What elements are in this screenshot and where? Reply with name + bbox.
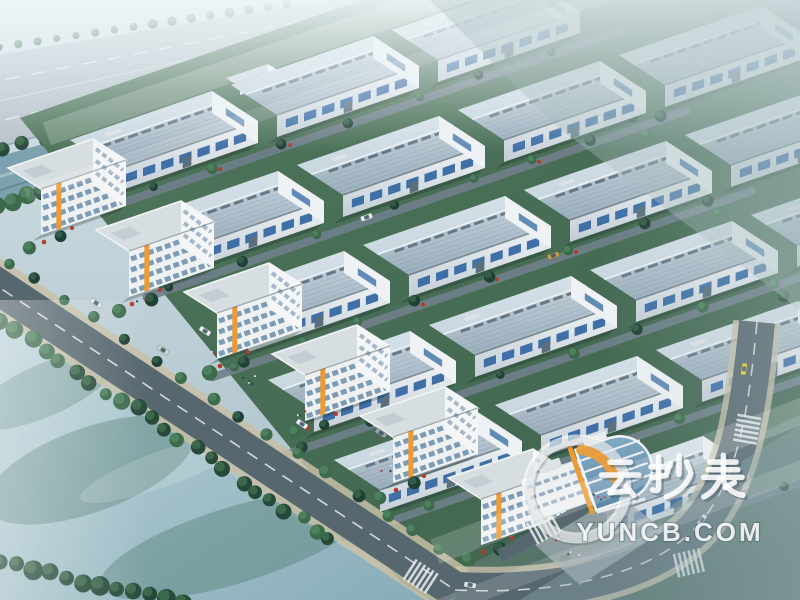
tree xyxy=(157,423,171,437)
office-accent-strip xyxy=(144,244,149,292)
tree xyxy=(230,363,239,372)
tree xyxy=(470,174,479,183)
person-dot xyxy=(297,414,299,416)
scene-svg: YUNCB.COM xyxy=(0,0,800,600)
tree xyxy=(312,230,321,239)
tree xyxy=(207,163,218,174)
tree xyxy=(374,492,387,505)
tree xyxy=(55,230,67,242)
tree xyxy=(408,476,421,489)
person-dot xyxy=(214,354,216,356)
tree xyxy=(175,372,187,384)
tree xyxy=(353,490,366,503)
tree xyxy=(4,259,15,270)
tree xyxy=(319,420,329,430)
tree xyxy=(23,241,36,254)
office-accent-strip xyxy=(408,430,413,478)
tree xyxy=(232,411,244,423)
tree xyxy=(319,465,332,478)
office-accent-strip xyxy=(232,306,237,354)
tree xyxy=(214,461,230,477)
person-dot xyxy=(390,465,392,467)
tree xyxy=(169,433,184,448)
tree xyxy=(29,272,40,283)
tree xyxy=(496,371,504,379)
office-accent-strip xyxy=(320,368,325,416)
person-dot xyxy=(304,410,306,412)
tree xyxy=(406,524,418,536)
tree xyxy=(424,500,435,511)
brand-domain-text: YUNCB.COM xyxy=(576,517,763,547)
person-dot xyxy=(389,470,391,472)
person-dot xyxy=(254,375,256,377)
person-dot xyxy=(242,377,244,379)
tree xyxy=(238,356,250,368)
tree xyxy=(569,348,580,359)
tree xyxy=(202,365,217,380)
person-dot xyxy=(299,414,301,416)
person-dot xyxy=(211,351,213,353)
person-dot xyxy=(305,417,307,419)
tree xyxy=(484,271,496,283)
tree xyxy=(260,428,272,440)
tree xyxy=(383,510,395,522)
tree xyxy=(292,448,303,459)
tree xyxy=(321,532,334,545)
person-dot xyxy=(248,382,250,384)
tree xyxy=(205,451,218,464)
tree xyxy=(237,256,248,267)
aerial-rendering: YUNCB.COM 云抄表 xyxy=(0,0,800,600)
person-dot xyxy=(251,383,253,385)
tree xyxy=(298,511,311,524)
tree xyxy=(263,493,276,506)
tree xyxy=(149,183,157,191)
tree xyxy=(208,393,221,406)
person-dot xyxy=(380,470,382,472)
tree xyxy=(563,245,573,255)
tree xyxy=(276,504,292,520)
tree xyxy=(191,440,206,455)
tree xyxy=(288,426,301,439)
tree xyxy=(390,200,399,209)
tree xyxy=(248,485,262,499)
tree xyxy=(152,356,163,367)
person-dot xyxy=(203,350,205,352)
tree xyxy=(409,295,420,306)
tree xyxy=(527,155,536,164)
